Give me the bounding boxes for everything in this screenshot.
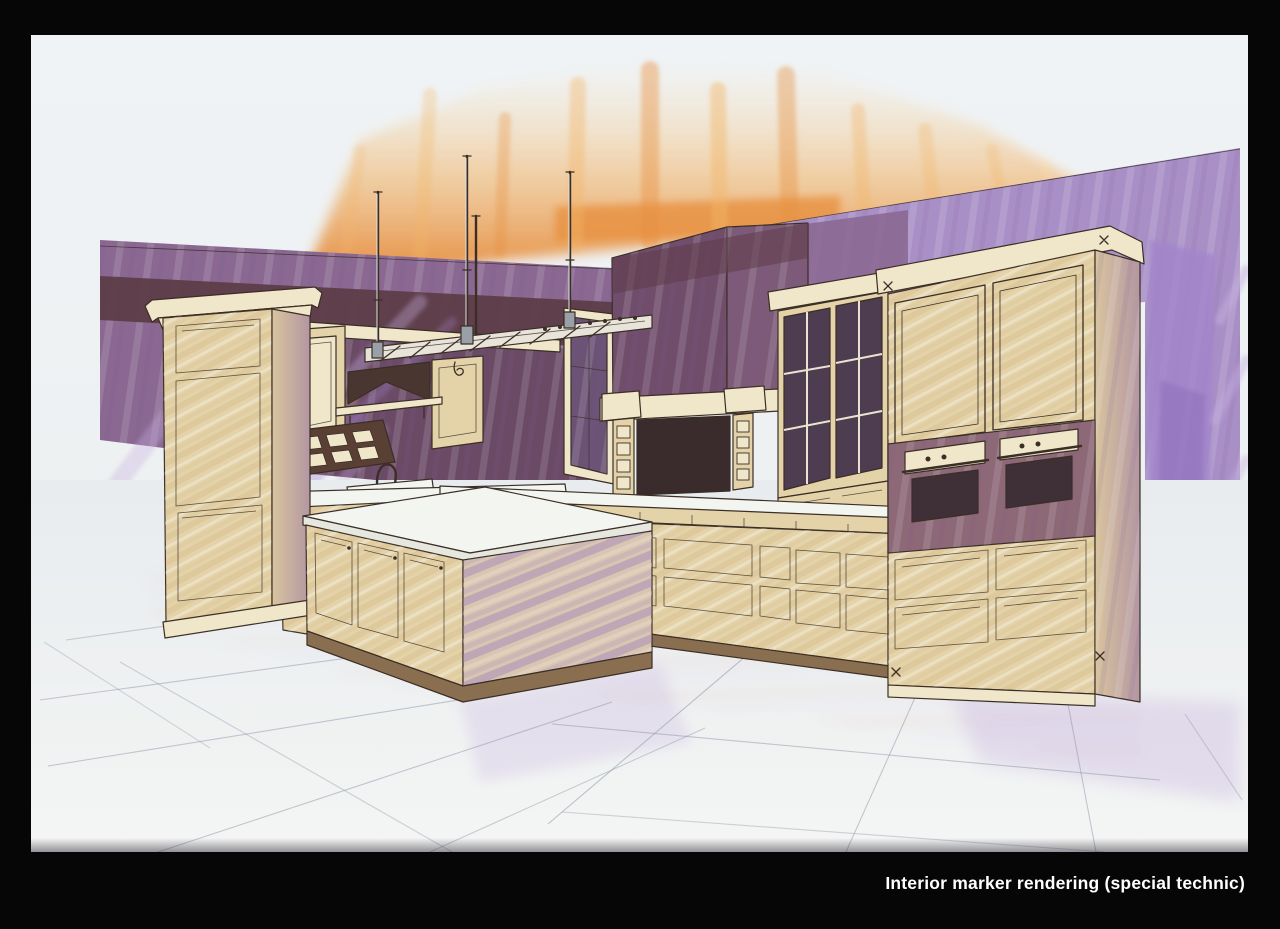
- double-wall-ovens: [888, 420, 1095, 553]
- glass-hutch: [768, 270, 897, 529]
- framed-artwork: Interior marker rendering (special techn…: [0, 0, 1280, 929]
- artwork-caption: Interior marker rendering (special techn…: [885, 873, 1245, 894]
- kitchen-marker-rendering: [31, 35, 1248, 852]
- oven-cabinet: [876, 226, 1144, 706]
- artwork-paper: [31, 35, 1248, 852]
- pantry-cabinet: [145, 287, 322, 638]
- paper-edge-shadow: [31, 838, 1248, 852]
